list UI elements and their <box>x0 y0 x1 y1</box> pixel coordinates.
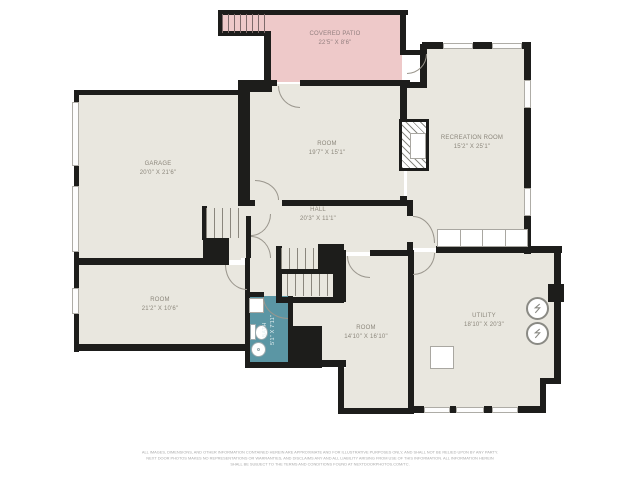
wall <box>400 86 407 122</box>
cabinet-cell <box>506 229 529 247</box>
corridor-floor <box>250 252 278 296</box>
room-name: ROOM <box>306 324 426 333</box>
room-label-utility: UTILITY 18'10" X 20'3" <box>424 312 544 331</box>
window <box>492 407 518 413</box>
wall <box>407 200 413 216</box>
wall <box>338 408 412 414</box>
room-dims: 14'10" X 16'10" <box>306 333 426 342</box>
room-label-center-room: ROOM 19'7" X 15'1" <box>267 140 387 159</box>
wall <box>300 80 410 86</box>
room-dims: 18'10" X 20'3" <box>424 321 544 330</box>
wall <box>265 80 277 86</box>
cabinet-cell <box>437 229 461 247</box>
room-label-hall: HALL 20'3" X 11'1" <box>258 206 378 225</box>
room-dims: 22'5" X 8'6" <box>275 39 395 48</box>
room-name: BATH <box>262 305 270 355</box>
room-dims: 15'2" X 25'1" <box>412 143 532 152</box>
window <box>492 43 522 49</box>
wall <box>74 258 227 265</box>
wall <box>473 42 492 49</box>
room-dims: 5'1" X 7'11" <box>270 305 278 355</box>
room-name: HALL <box>258 206 378 215</box>
furnace-icon <box>430 346 454 369</box>
room-dims: 20'0" X 21'6" <box>98 169 218 178</box>
wall <box>245 362 292 368</box>
utility-notch <box>546 384 560 410</box>
wall <box>554 250 561 384</box>
wall <box>340 256 346 302</box>
floor-plan: COVERED PATIO 22'5" X 8'6" GARAGE 20'0" … <box>0 0 640 480</box>
wall <box>400 10 406 54</box>
room-dims: 20'3" X 11'1" <box>258 215 378 224</box>
patio-steps-icon <box>222 14 268 33</box>
window <box>524 188 531 216</box>
cabinet-cell <box>483 229 506 247</box>
disclaimer-line: SHALL BE SUBJECT TO THE TERMS AND CONDIT… <box>44 462 596 468</box>
room-label-bath: BATH 5'1" X 7'11" <box>262 305 278 355</box>
wall <box>400 82 427 88</box>
staircase-upper-icon <box>281 248 318 269</box>
room-dims: 19'7" X 15'1" <box>267 149 387 158</box>
garage-steps-icon <box>206 208 246 238</box>
window <box>72 186 79 252</box>
room-name: ROOM <box>267 140 387 149</box>
room-name: RECREATION ROOM <box>412 134 532 143</box>
wall <box>436 246 530 253</box>
room-label-bottom-room: ROOM 14'10" X 16'10" <box>306 324 426 343</box>
staircase-lower-icon <box>287 274 333 296</box>
wall <box>338 366 344 414</box>
room-label-garage: GARAGE 20'0" X 21'6" <box>98 160 218 179</box>
window <box>72 102 79 166</box>
sink-drain-icon <box>257 348 260 351</box>
room-label-recreation: RECREATION ROOM 15'2" X 25'1" <box>412 134 532 153</box>
wall <box>540 378 546 412</box>
window <box>456 407 484 413</box>
room-name: GARAGE <box>98 160 218 169</box>
window <box>72 288 79 314</box>
wall <box>238 88 250 206</box>
room-name: COVERED PATIO <box>275 30 395 39</box>
room-name: UTILITY <box>424 312 544 321</box>
wall <box>370 250 408 256</box>
room-dims: 21'2" X 10'6" <box>100 305 220 314</box>
utility-chimney <box>548 284 564 302</box>
window <box>524 80 531 108</box>
wall <box>74 90 79 102</box>
wall <box>74 344 246 351</box>
wall <box>74 90 246 95</box>
room-label-left-room: ROOM 21'2" X 10'6" <box>100 296 220 315</box>
wall <box>524 42 531 80</box>
wall <box>264 31 271 86</box>
window <box>424 407 450 413</box>
wall <box>484 406 492 413</box>
room-label-covered-patio: COVERED PATIO 22'5" X 8'6" <box>275 30 395 49</box>
wall <box>74 166 79 186</box>
cabinet-cell <box>461 229 484 247</box>
wall <box>245 292 264 297</box>
wall <box>248 200 255 206</box>
wall <box>422 42 443 49</box>
counter-cabinets <box>437 229 528 247</box>
room-name: ROOM <box>100 296 220 305</box>
wall <box>412 406 424 413</box>
window <box>443 43 473 49</box>
